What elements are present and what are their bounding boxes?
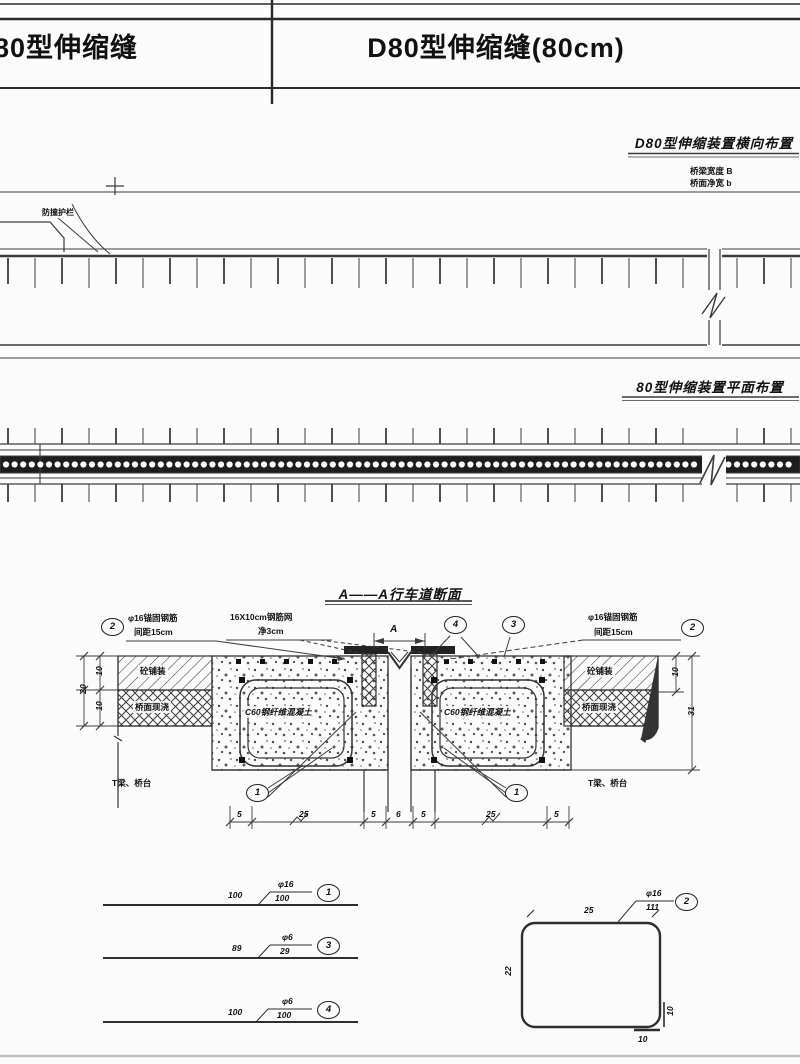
bar2-spacing: 111 [646,902,659,912]
pavement-label-left: 砼铺装 [138,665,168,677]
callout-circle-4: 4 [444,616,467,634]
beam-label-left: T梁、桥台 [112,777,151,789]
mesh-label-2: 净3cm [258,625,284,637]
callout-circle-2-right: 2 [681,619,704,637]
dim-left-total: 20 [78,679,88,699]
dim-A: A [390,624,397,635]
mesh-label-1: 16X10cm钢筋网 [230,611,292,623]
dim-left-seg2: 10 [94,696,104,716]
anchor-rebar-label-right-2: 间距15cm [594,626,633,638]
dim-b2: 5 [371,809,376,819]
plan-view-lines [0,397,800,484]
bar4-length: 100 [228,1007,242,1017]
title-right: D80型伸缩缝(80cm) [300,26,692,65]
bar2-bottom-dim: 10 [638,1034,647,1044]
anchor-rebar-label-left-1: φ16锚固钢筋 [128,612,178,624]
anchor-ticks-elevation [8,258,791,288]
bar1-length: 100 [228,890,242,900]
plan-joint-break [700,452,726,486]
note-deck-width: 桥面净宽 b [690,177,732,189]
bar4-spacing: 100 [277,1010,291,1020]
bar3-length: 89 [232,943,241,953]
deck-label-right: 桥面现浇 [580,701,618,713]
plan-view-title: 80型伸缩装置平面布置 [624,376,796,396]
dim-b6: 5 [554,809,559,819]
bar4-circle: 4 [317,1001,340,1019]
section-view-title: A——A行车道断面 [320,583,480,603]
bar3-dia: φ6 [282,932,293,942]
anchor-rebar-label-right-1: φ16锚固钢筋 [588,611,638,623]
beam-label-right: T梁、桥台 [588,777,627,789]
elevation-joint-break [701,243,728,351]
bar2-circle: 2 [675,893,698,911]
callout-circle-1-left: 1 [246,784,269,802]
bar2-left-dim: 22 [503,961,513,981]
c60-label-left: C60钢纤维混凝土 [243,706,314,718]
pavement-label-right: 砼铺装 [585,665,615,677]
bar2-top-dim: 25 [584,905,593,915]
bar2-dia: φ16 [646,888,661,898]
transverse-view-lines [0,154,800,359]
dim-b5: 25 [486,809,495,819]
title-left: 80型伸缩缝 [0,26,138,65]
bar3-spacing: 29 [280,946,289,956]
anchor-rebar-label-left-2: 间距15cm [134,626,173,638]
transverse-view-title: D80型伸缩装置横向布置 [630,132,798,152]
dim-left-seg1: 10 [94,661,104,681]
deck-label-left: 桥面现浇 [133,701,171,713]
section-structure [114,646,658,812]
guardrail-label: 防撞护栏 [42,207,74,218]
callout-circle-1-right: 1 [505,784,528,802]
bar2-right-dim: 10 [665,1001,675,1021]
bar4-dia: φ6 [282,996,293,1006]
bar1-spacing: 100 [275,893,289,903]
dim-b4: 5 [421,809,426,819]
callout-circle-3: 3 [502,616,525,634]
bar1-circle: 1 [317,884,340,902]
dim-right-total: 31 [686,701,696,721]
c60-label-right: C60钢纤维混凝土 [442,706,513,718]
bar1-dia: φ16 [278,879,293,889]
dim-right-seg1: 10 [670,662,680,682]
note-bridge-width: 桥梁宽度 B [690,165,733,177]
dim-b0: 5 [237,809,242,819]
bar3-circle: 3 [317,937,340,955]
drawing-sheet: 80型伸缩缝 D80型伸缩缝(80cm) D80型伸缩装置横向布置 桥梁宽度 B… [0,0,800,1064]
dim-b3: 6 [396,809,401,819]
dim-b1: 25 [299,809,308,819]
callout-circle-2-left: 2 [101,618,124,636]
